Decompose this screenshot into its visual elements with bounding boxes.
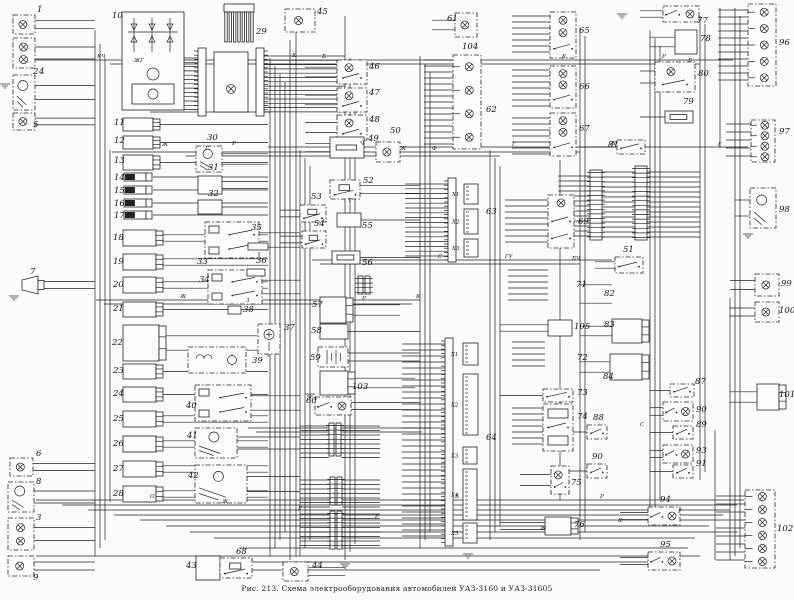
component-number: 51 (623, 245, 634, 255)
component-51: 51 (615, 245, 643, 273)
svg-text:ГУ: ГУ (504, 254, 514, 260)
component-number: 79 (683, 97, 694, 107)
component-number: 71 (576, 280, 587, 290)
component-number: 14 (114, 173, 125, 183)
svg-text:Ж: Ж (609, 141, 617, 147)
component-connector (327, 511, 345, 549)
svg-text:Р: Р (599, 494, 604, 500)
component-46: 46 (337, 60, 380, 84)
component-number: 4 (38, 67, 44, 77)
component-62: 62 (453, 55, 497, 149)
component-101: 101 (757, 384, 794, 410)
component-44: 44 (283, 561, 323, 581)
component-16: 16 (114, 199, 152, 209)
component-number: 16 (114, 199, 125, 209)
component-number: 66 (579, 82, 590, 92)
component-6: 6 (10, 449, 42, 476)
component-95: 95 (648, 540, 680, 570)
component-7: 7 (22, 267, 44, 294)
component-82: 82 (604, 289, 615, 299)
component-number: 53 (311, 192, 322, 202)
component-number: 61 (447, 14, 458, 24)
component-number: 98 (779, 205, 790, 215)
component-number: 35 (251, 223, 262, 233)
svg-text:З: З (246, 298, 250, 304)
component-38: 38 (228, 305, 254, 315)
component-90: 90 (663, 402, 707, 421)
component-54: 54 (302, 219, 326, 248)
component-number: 22 (111, 338, 123, 348)
svg-text:Х2: Х2 (450, 403, 459, 409)
component-15: 15 (114, 186, 152, 196)
component-77: 77 (663, 6, 708, 26)
component-number: 64 (486, 433, 497, 443)
component-69: 69 (548, 195, 589, 248)
component-19: 19 (113, 254, 163, 270)
svg-text:Г: Г (677, 509, 682, 515)
svg-text:Г: Г (297, 506, 302, 512)
component-25: 25 (112, 411, 163, 427)
component-number: 63 (486, 207, 497, 217)
component-49: 49 (330, 134, 379, 158)
component-103: 103 (320, 371, 368, 395)
component-67: 67 (550, 113, 590, 156)
component-number: 76 (574, 520, 585, 530)
component-connector (327, 477, 345, 505)
component-connector (587, 170, 605, 240)
component-number: 45 (316, 7, 328, 17)
component-4: 4 (13, 67, 44, 110)
component-50: 50 (376, 126, 401, 162)
svg-text:Ж: Ж (221, 499, 229, 505)
component-number: 9 (33, 573, 39, 582)
component-41: 41 (186, 428, 237, 458)
svg-text:Б: Б (687, 58, 692, 64)
component-number: 83 (604, 320, 615, 330)
component-number: 97 (779, 127, 790, 137)
component-number: 15 (114, 186, 125, 196)
component-number: 100 (779, 306, 794, 316)
component-58: 58 (311, 324, 348, 339)
component-99: 99 (755, 274, 792, 296)
component-8: 8 (8, 477, 42, 512)
component-90: 90 (587, 452, 607, 478)
component-105: 105 (548, 320, 590, 336)
component-number: 20 (112, 280, 124, 290)
component-number: 19 (113, 257, 124, 267)
component-number: 80 (698, 69, 709, 79)
component-number: 27 (112, 464, 124, 474)
component-71: 71 (576, 280, 587, 290)
component-number: 17 (114, 211, 125, 221)
component-56: 56 (332, 251, 373, 268)
component-number: 67 (579, 124, 590, 134)
component-number: 12 (114, 136, 125, 146)
component-number: 105 (574, 322, 590, 332)
component-number: 74 (577, 412, 588, 422)
svg-text:К: К (617, 518, 623, 524)
component-number: 84 (603, 372, 614, 382)
component-84: 84 (603, 354, 649, 382)
component-number: 33 (197, 257, 208, 267)
svg-text:Т: Т (348, 198, 352, 204)
component-number: 65 (579, 26, 590, 36)
component-number: 62 (486, 105, 497, 115)
component-20: 20 (112, 277, 163, 293)
svg-text:Р: Р (361, 296, 366, 302)
component-17: 17 (114, 211, 152, 221)
component-14: 14 (114, 173, 152, 183)
svg-text:К: К (291, 53, 297, 59)
component-72: 72 (577, 353, 588, 363)
component-23: 23 (112, 364, 163, 379)
component-39: 39 (188, 347, 263, 373)
svg-text:Г: Г (204, 146, 209, 152)
component-number: 101 (779, 390, 794, 400)
component-number: 57 (312, 300, 323, 310)
component-96: 96 (748, 4, 790, 86)
svg-text:Г: Г (717, 142, 722, 148)
component-94: 94 (648, 495, 680, 525)
component-12: 12 (114, 136, 160, 149)
component-number: 48 (368, 115, 380, 125)
svg-text:С: С (640, 422, 645, 428)
component-9: 9 (8, 556, 39, 582)
svg-text:Х3: Х3 (450, 454, 459, 460)
component-53: 53 (300, 192, 326, 222)
component-47: 47 (337, 88, 380, 112)
svg-text:С: С (438, 254, 443, 260)
component-24: 24 (112, 387, 163, 402)
component-number: 44 (311, 561, 323, 571)
component-number: 102 (777, 524, 793, 534)
component-number: 34 (199, 275, 210, 285)
svg-text:Ж: Ж (179, 294, 187, 300)
component-number: 96 (779, 38, 790, 48)
component-number: 26 (112, 439, 124, 449)
component-100: 100 (755, 302, 794, 322)
svg-text:К: К (415, 294, 421, 300)
component-number: 36 (256, 256, 267, 266)
component-number: 38 (243, 305, 254, 315)
svg-text:К: К (561, 54, 567, 60)
component-88: 88 (587, 413, 607, 439)
svg-text:Г: Г (511, 142, 516, 148)
component-5: 5 (13, 113, 38, 130)
component-number: 55 (362, 221, 373, 231)
component-57: 57 (312, 297, 353, 323)
component-52: 52 (330, 176, 374, 199)
component-number: 28 (112, 489, 124, 499)
component-number: 23 (112, 366, 124, 376)
component-number: 24 (112, 389, 124, 399)
component-89: 89 (673, 420, 707, 439)
schematic-page: 1245768391011121314151617181920212223242… (0, 0, 794, 600)
component-63: Х1Х2Х363 (444, 178, 497, 262)
svg-text:Б: Б (454, 494, 459, 500)
svg-text:Х3: Х3 (451, 246, 460, 252)
svg-text:Х1: Х1 (450, 352, 458, 358)
component-43: 43 (185, 556, 220, 580)
component-102: 102 (745, 490, 793, 568)
component-number: 30 (207, 133, 218, 143)
component-connector (224, 4, 254, 42)
component-number: 29 (255, 27, 267, 37)
component-number: 78 (700, 34, 711, 44)
component-number: 21 (112, 304, 124, 314)
svg-text:БЧ: БЧ (571, 256, 581, 262)
component-number: 32 (208, 189, 219, 199)
component-number: 58 (311, 326, 322, 336)
component-number: 13 (114, 156, 125, 166)
wiring-diagram: 1245768391011121314151617181920212223242… (0, 0, 794, 582)
component-73: 73 (543, 388, 588, 402)
component-number: 37 (284, 323, 295, 333)
component-number: 54 (314, 219, 325, 229)
component-number: 94 (660, 495, 671, 505)
component-61: 61 (447, 13, 477, 37)
component-number: 7 (30, 267, 36, 277)
component-number: 6 (36, 449, 42, 459)
component-68: 68 (220, 547, 252, 578)
component-number: 39 (252, 356, 263, 366)
component-number: 99 (781, 279, 792, 289)
figure-caption: Рис. 213. Схема электрооборудования авто… (0, 584, 794, 593)
svg-text:Ж: Ж (399, 146, 407, 152)
component-number: 5 (33, 120, 38, 130)
component-number: 73 (577, 388, 588, 398)
component-79: 79 (665, 97, 694, 123)
component-97: 97 (751, 120, 790, 162)
component-number: 82 (604, 289, 615, 299)
component-number: 52 (363, 176, 374, 186)
component-number: 77 (697, 16, 708, 26)
component-number: 3 (36, 513, 41, 523)
component-number: 90 (592, 452, 603, 462)
svg-text:ЖГ: ЖГ (133, 58, 144, 64)
component-number: 8 (36, 477, 42, 487)
svg-text:Ф: Ф (432, 146, 437, 152)
component-1: 1 (13, 5, 42, 34)
component-number: 31 (208, 163, 219, 173)
component-number: 10 (112, 11, 123, 21)
svg-text:Х2: Х2 (451, 220, 460, 226)
component-74: 74 (543, 404, 588, 451)
component-75: 75 (551, 466, 582, 494)
svg-text:Ж: Ж (161, 142, 169, 148)
component-number: 72 (577, 353, 588, 363)
svg-text:КЧ: КЧ (96, 54, 106, 60)
component-65: 65 (550, 12, 590, 58)
component-42: 42 (187, 465, 247, 503)
component-13: 13 (114, 155, 160, 170)
component-number: 41 (186, 431, 198, 441)
svg-text:Х1: Х1 (451, 192, 459, 198)
svg-text:О: О (150, 494, 155, 500)
component-number: 90 (696, 405, 707, 415)
component-number: 68 (236, 547, 247, 557)
component-83: 83 (604, 319, 649, 343)
svg-text:Р: Р (231, 141, 236, 147)
component-11: 11 (114, 118, 160, 131)
component-45: 45 (285, 7, 328, 32)
component-66: 66 (550, 66, 590, 108)
svg-text:Х5: Х5 (450, 531, 459, 537)
component-number: 1 (37, 5, 42, 15)
component-number: 95 (660, 540, 671, 550)
component-3: 3 (8, 513, 41, 550)
component-number: 88 (593, 413, 604, 423)
component-number: 40 (185, 401, 197, 411)
component-59: 59 (310, 347, 348, 367)
component-number: 75 (571, 478, 582, 488)
component-number: 46 (368, 62, 380, 72)
component-connector (632, 166, 650, 240)
svg-text:Ж: Ж (539, 526, 547, 532)
component-number: 42 (187, 471, 199, 481)
component-2: 2 (13, 38, 38, 77)
component-98: 98 (750, 188, 790, 228)
component-number: 103 (352, 382, 368, 392)
component-number: 93 (696, 446, 707, 456)
component-number: 56 (362, 258, 373, 268)
component-number: 60 (306, 396, 317, 406)
component-number: 47 (368, 88, 380, 98)
component-number: 18 (113, 233, 124, 243)
component-87: 87 (670, 377, 706, 397)
component-connector (355, 276, 373, 294)
svg-text:Р: Р (374, 514, 379, 520)
component-10: 10 (112, 11, 184, 110)
component-21: 21 (112, 302, 163, 317)
component-27: 27 (112, 461, 163, 477)
svg-text:Ч: Ч (360, 141, 365, 147)
component-number: 11 (114, 118, 125, 128)
component-28: 28 (112, 486, 163, 502)
component-78: 78 (675, 30, 711, 54)
component-26: 26 (112, 436, 163, 452)
component-number: 43 (185, 561, 197, 571)
component-number: 87 (695, 377, 706, 387)
component-60: 60 (306, 396, 351, 415)
component-22: 22 (111, 325, 166, 361)
component-number: 89 (696, 420, 707, 430)
component-number: 25 (112, 414, 124, 424)
svg-text:Б: Б (321, 54, 326, 60)
component-18: 18 (113, 230, 163, 246)
component-number: 50 (390, 126, 401, 136)
component-number: 91 (696, 459, 707, 469)
svg-text:Р: Р (661, 54, 666, 60)
component-104: 104 (462, 42, 478, 52)
component-number: 59 (310, 353, 321, 363)
component-80: 80 (655, 62, 709, 92)
component-number: 104 (462, 42, 478, 52)
